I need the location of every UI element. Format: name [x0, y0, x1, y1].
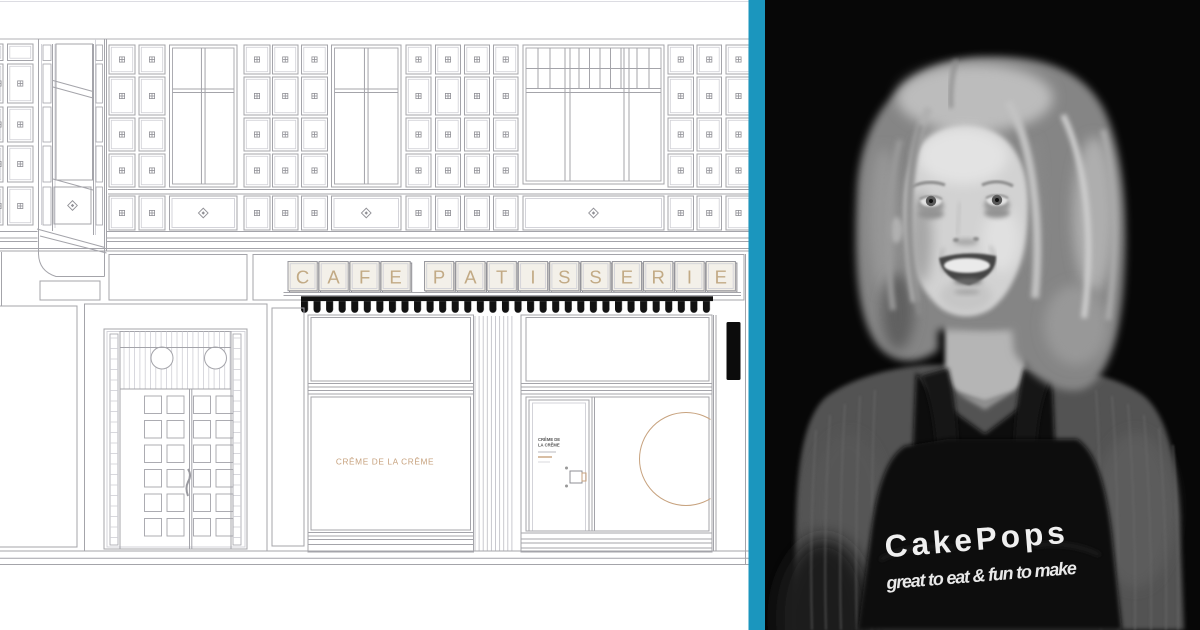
svg-text:F: F [359, 267, 370, 288]
svg-text:E: E [621, 267, 633, 288]
svg-text:I: I [530, 267, 535, 288]
svg-text:E: E [389, 267, 401, 288]
svg-text:S: S [558, 267, 570, 288]
svg-text:CRÊME DE LA CRÊME: CRÊME DE LA CRÊME [336, 457, 434, 467]
svg-text:S: S [589, 267, 601, 288]
svg-text:P: P [433, 267, 445, 288]
svg-text:A: A [327, 267, 340, 288]
svg-text:CRÊME DE: CRÊME DE [538, 437, 560, 442]
svg-text:R: R [652, 267, 665, 288]
svg-text:T: T [496, 267, 507, 288]
svg-text:LA CRÊME: LA CRÊME [538, 443, 560, 448]
svg-text:C: C [296, 267, 309, 288]
svg-text:I: I [687, 267, 692, 288]
svg-text:E: E [715, 267, 727, 288]
svg-text:A: A [464, 267, 477, 288]
